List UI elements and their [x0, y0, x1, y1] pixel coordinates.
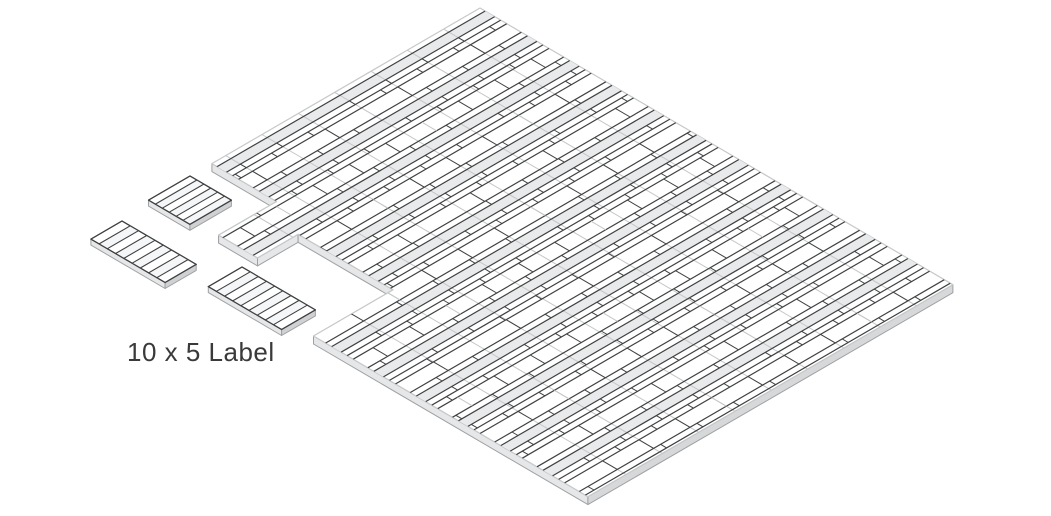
label-sheet: [120, 8, 953, 505]
diagram-canvas: [0, 0, 1051, 516]
label-piece-3: [208, 267, 315, 336]
isometric-label-sheet-diagram: 10 x 5 Label: [0, 0, 1051, 516]
diagram-caption: 10 x 5 Label: [127, 338, 275, 367]
label-piece-2: [91, 221, 196, 289]
label-piece-1: [149, 176, 232, 230]
